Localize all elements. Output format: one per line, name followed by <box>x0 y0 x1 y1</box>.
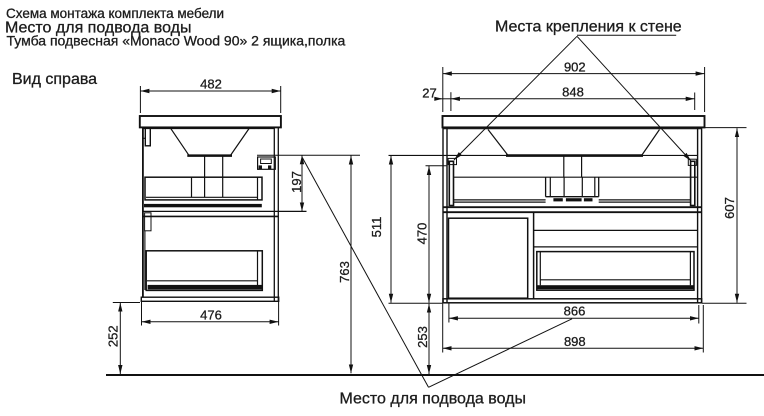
svg-text:476: 476 <box>200 307 222 322</box>
svg-text:252: 252 <box>105 325 120 347</box>
svg-text:866: 866 <box>564 303 586 318</box>
svg-text:898: 898 <box>564 334 586 349</box>
svg-text:763: 763 <box>337 261 352 283</box>
svg-text:902: 902 <box>564 60 586 75</box>
svg-text:470: 470 <box>415 223 430 245</box>
svg-text:Места крепления к стене: Места крепления к стене <box>495 18 682 35</box>
svg-text:607: 607 <box>722 197 737 219</box>
svg-text:Место для подвода воды: Место для подвода воды <box>340 391 526 408</box>
svg-text:197: 197 <box>289 171 304 193</box>
svg-text:253: 253 <box>415 326 430 348</box>
svg-text:Тумба подвесная «Monaco Wood 9: Тумба подвесная «Monaco Wood 90» 2 ящика… <box>7 33 346 49</box>
svg-text:482: 482 <box>200 77 222 92</box>
svg-text:511: 511 <box>369 217 384 238</box>
svg-text:848: 848 <box>562 85 584 100</box>
svg-text:Вид справа: Вид справа <box>12 71 97 88</box>
svg-text:27: 27 <box>422 86 436 101</box>
